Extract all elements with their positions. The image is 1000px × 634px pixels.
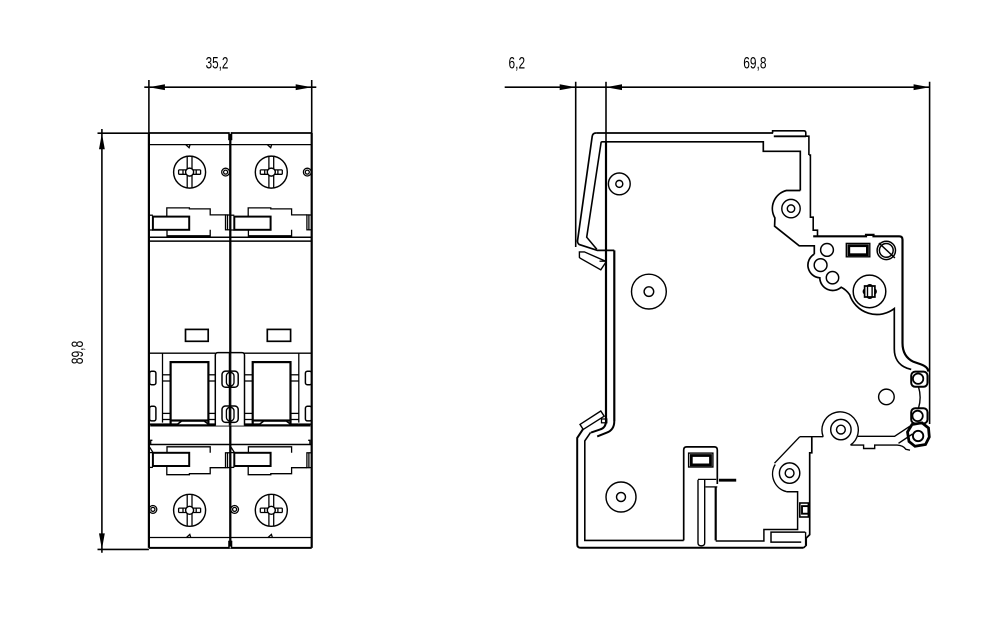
svg-text:35,2: 35,2 [206,54,229,72]
svg-text:69,8: 69,8 [743,55,766,73]
svg-text:89,8: 89,8 [69,341,87,365]
svg-text:6,2: 6,2 [509,55,526,73]
